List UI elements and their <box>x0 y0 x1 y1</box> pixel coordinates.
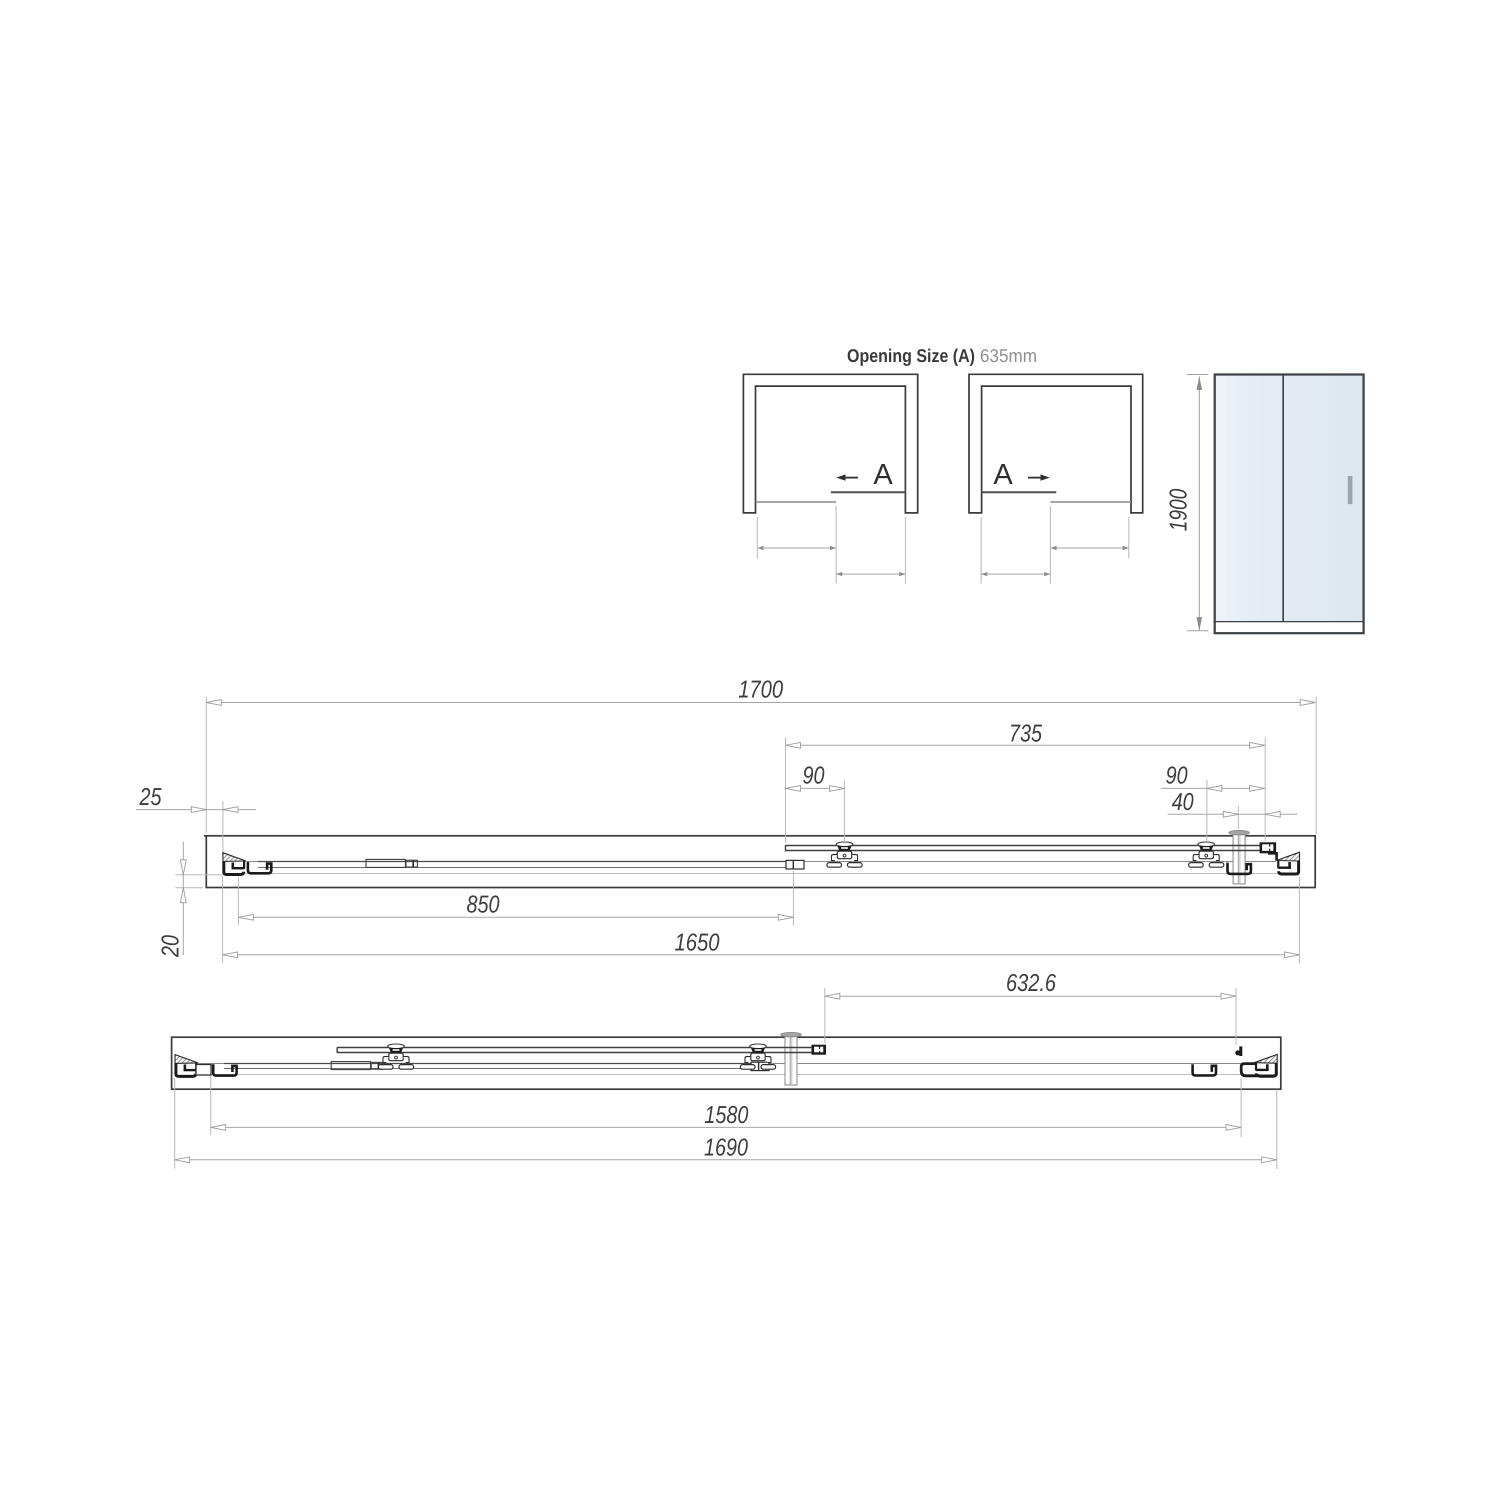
svg-text:735: 735 <box>1009 721 1042 748</box>
svg-text:90: 90 <box>803 762 825 789</box>
svg-text:850: 850 <box>467 892 500 919</box>
svg-text:20: 20 <box>158 935 185 958</box>
svg-text:90: 90 <box>1166 762 1188 789</box>
svg-text:1580: 1580 <box>704 1102 748 1129</box>
svg-text:1900: 1900 <box>1166 488 1193 531</box>
svg-text:1650: 1650 <box>675 930 720 957</box>
svg-text:40: 40 <box>1172 789 1194 816</box>
svg-text:Opening Size (A): Opening Size (A) <box>847 345 975 366</box>
svg-text:632.6: 632.6 <box>1006 970 1056 997</box>
svg-text:1690: 1690 <box>704 1135 748 1162</box>
svg-text:635mm: 635mm <box>980 345 1037 366</box>
svg-text:A: A <box>993 459 1013 491</box>
svg-text:A: A <box>873 459 893 491</box>
svg-text:25: 25 <box>139 784 162 811</box>
svg-text:1700: 1700 <box>738 676 783 703</box>
